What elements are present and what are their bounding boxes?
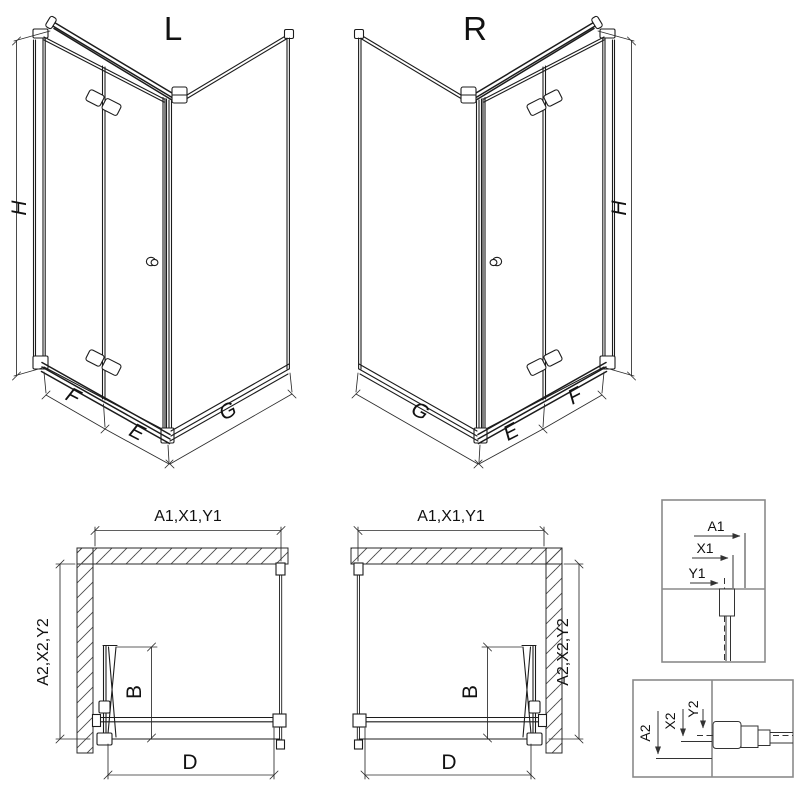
iso-left-title: L [164, 10, 182, 47]
plan-left-dim-width: A1,X1,Y1 [154, 508, 222, 525]
plan-right-dim-width: A1,X1,Y1 [417, 508, 485, 525]
iso-right-title: R [463, 10, 487, 47]
drawing-canvas: A1 X1 Y1 A2 X2 Y2 L R H F E G H F E G A1… [0, 0, 800, 800]
detail-label-a2: A2 [637, 724, 653, 741]
detail-label-y1: Y1 [688, 565, 705, 581]
plan-right-dim-d: D [441, 751, 456, 774]
plan-left-dim-depth: A2,X2,Y2 [35, 618, 52, 686]
iso-right-dim-h: H [608, 200, 631, 216]
plan-left-dim-d: D [182, 751, 197, 774]
detail-label-y2: Y2 [685, 700, 701, 717]
detail-label-x2: X2 [662, 712, 678, 729]
iso-left-dim-h: H [8, 200, 31, 216]
detail-label-x1: X1 [696, 540, 713, 556]
detail-label-a1: A1 [707, 518, 724, 534]
plan-right-dim-b: B [459, 685, 482, 699]
plan-right-dim-depth: A2,X2,Y2 [555, 618, 572, 686]
plan-left-dim-b: B [123, 685, 146, 699]
shower-enclosure-technical-drawing: A1 X1 Y1 A2 X2 Y2 L R H F E G H F E G A1… [0, 0, 800, 800]
